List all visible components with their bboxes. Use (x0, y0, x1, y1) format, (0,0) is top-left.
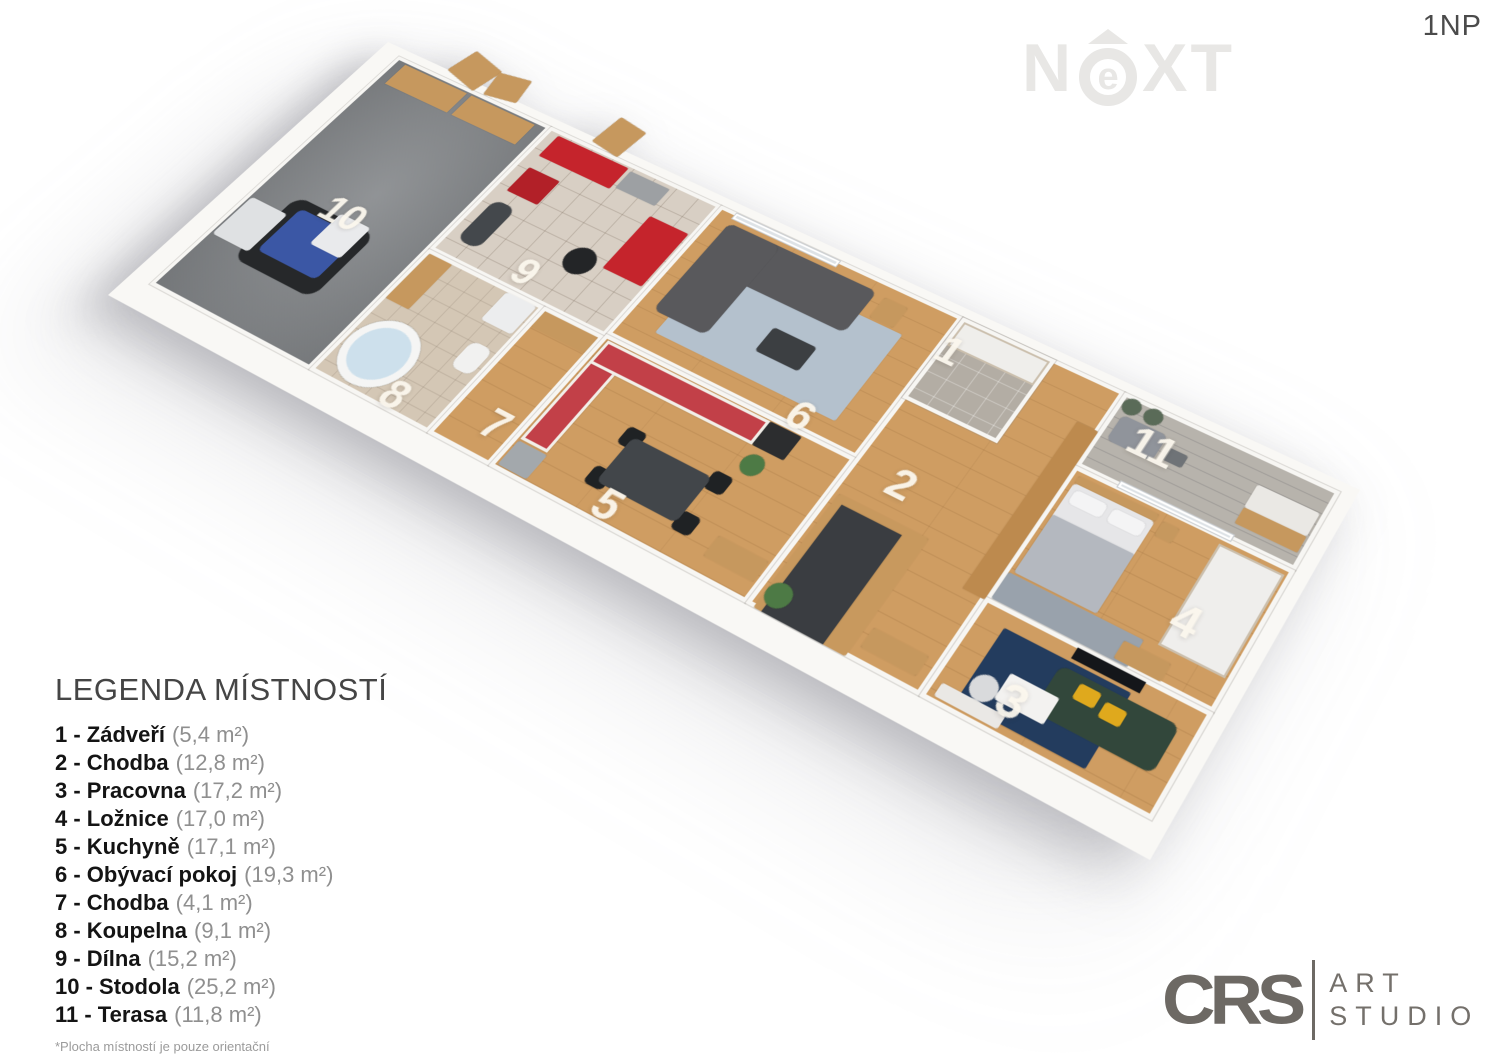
legend-room-name: 10 - Stodola (55, 974, 180, 999)
legend-room-area: (17,2 m²) (193, 778, 282, 803)
legend-item-5: 5 - Kuchyně(17,1 m²) (55, 833, 387, 861)
next-logo-circle: e (1079, 48, 1137, 106)
crs-logo-text: CRS (1162, 965, 1300, 1035)
legend-room-area: (5,4 m²) (172, 722, 249, 747)
legend-item-3: 3 - Pracovna(17,2 m²) (55, 777, 387, 805)
legend-room-name: 4 - Ložnice (55, 806, 169, 831)
next-logo-letter-e: e (1098, 58, 1119, 96)
logo-divider (1312, 960, 1315, 1040)
legend-title: LEGENDA MÍSTNOSTÍ (55, 672, 387, 708)
legend-room-area: (9,1 m²) (194, 918, 271, 943)
logo-word-studio: STUDIO (1329, 1002, 1479, 1032)
legend-room-area: (12,8 m²) (176, 750, 265, 775)
legend-room-area: (17,1 m²) (187, 834, 276, 859)
legend-room-name: 7 - Chodba (55, 890, 169, 915)
legend-item-7: 7 - Chodba(4,1 m²) (55, 889, 387, 917)
legend-room-name: 2 - Chodba (55, 750, 169, 775)
legend-item-4: 4 - Ložnice(17,0 m²) (55, 805, 387, 833)
floor-level-label: 1NP (1423, 10, 1482, 43)
legend-footnote: *Plocha místností je pouze orientační (55, 1039, 387, 1054)
legend-room-name: 3 - Pracovna (55, 778, 186, 803)
floorplan-page: N e XT 1NP 1098756121143 LEGENDA MÍSTNOS… (0, 0, 1500, 1060)
legend-item-8: 8 - Koupelna(9,1 m²) (55, 917, 387, 945)
legend-room-area: (11,8 m²) (174, 1002, 262, 1027)
next-logo-letters-xt: XT (1142, 34, 1235, 102)
legend-room-name: 6 - Obývací pokoj (55, 862, 237, 887)
logo-word-art: ART (1329, 969, 1479, 999)
legend-room-area: (25,2 m²) (187, 974, 276, 999)
legend-room-name: 9 - Dílna (55, 946, 141, 971)
legend-item-11: 11 - Terasa(11,8 m²) (55, 1001, 387, 1029)
legend-item-10: 10 - Stodola(25,2 m²) (55, 973, 387, 1001)
next-logo-letter-n: N (1022, 34, 1074, 102)
crs-art-studio-logo: CRS ART STUDIO (1162, 960, 1479, 1040)
next-logo-watermark: N e XT (1022, 34, 1235, 106)
legend-room-name: 11 - Terasa (55, 1002, 167, 1027)
legend-room-area: (15,2 m²) (148, 946, 237, 971)
legend-list: 1 - Zádveří(5,4 m²)2 - Chodba(12,8 m²)3 … (55, 721, 387, 1029)
roof-arrow-icon (1088, 29, 1128, 44)
legend-room-name: 5 - Kuchyně (55, 834, 180, 859)
legend-room-name: 1 - Zádveří (55, 722, 165, 747)
legend-room-name: 8 - Koupelna (55, 918, 187, 943)
legend: LEGENDA MÍSTNOSTÍ 1 - Zádveří(5,4 m²)2 -… (55, 672, 387, 1054)
legend-item-9: 9 - Dílna(15,2 m²) (55, 945, 387, 973)
legend-room-area: (4,1 m²) (176, 890, 253, 915)
legend-item-6: 6 - Obývací pokoj(19,3 m²) (55, 861, 387, 889)
logo-words: ART STUDIO (1329, 969, 1479, 1031)
legend-room-area: (19,3 m²) (244, 862, 333, 887)
legend-room-area: (17,0 m²) (176, 806, 265, 831)
legend-item-1: 1 - Zádveří(5,4 m²) (55, 721, 387, 749)
legend-item-2: 2 - Chodba(12,8 m²) (55, 749, 387, 777)
